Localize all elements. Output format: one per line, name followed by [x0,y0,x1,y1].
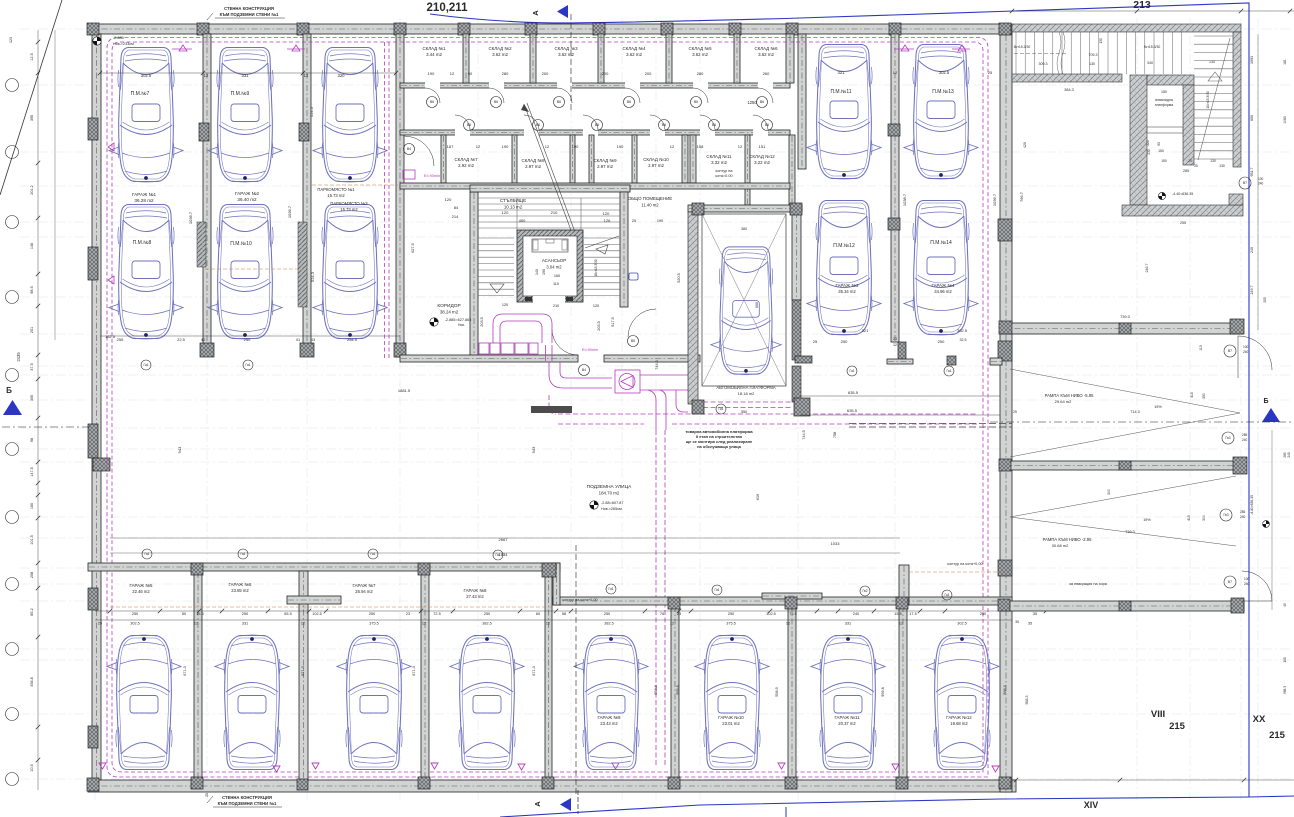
svg-text:321: 321 [862,328,869,333]
svg-text:201.2: 201.2 [30,185,34,195]
svg-text:214: 214 [452,214,459,219]
svg-text:Б: Б [1263,398,1268,405]
svg-text:36.28 m2: 36.28 m2 [134,198,154,203]
svg-text:250: 250 [728,612,734,616]
svg-text:151: 151 [759,144,766,149]
svg-text:190: 190 [572,144,579,149]
svg-text:671.3: 671.3 [183,666,187,676]
svg-text:СКЛАД №7: СКЛАД №7 [454,157,478,162]
svg-text:12: 12 [422,622,426,626]
svg-text:201: 201 [30,327,34,333]
svg-text:75.5: 75.5 [789,612,796,616]
svg-text:254.5: 254.5 [347,337,358,342]
svg-text:12: 12 [893,343,897,347]
svg-text:255: 255 [117,337,124,342]
svg-text:СКЛАД №12: СКЛАД №12 [749,154,775,159]
svg-text:260: 260 [763,71,770,76]
svg-text:150: 150 [1161,159,1167,163]
svg-text:П.М.№9: П.М.№9 [231,91,250,97]
svg-text:12: 12 [738,144,743,149]
svg-text:25: 25 [98,622,102,626]
svg-text:115: 115 [1199,345,1203,351]
svg-text:60: 60 [536,612,540,616]
svg-text:671.3: 671.3 [301,666,305,676]
svg-text:331: 331 [242,73,250,78]
svg-text:-2.885: -2.885 [113,36,124,40]
svg-text:415: 415 [1187,515,1191,521]
svg-text:76: 76 [660,612,664,616]
svg-text:43: 43 [311,337,316,342]
svg-text:203.5: 203.5 [597,321,601,331]
svg-text:190: 190 [657,219,663,223]
svg-text:450: 450 [519,218,526,223]
svg-text:23: 23 [406,612,410,616]
svg-text:250: 250 [369,612,375,616]
svg-text:В6: В6 [662,123,666,127]
svg-text:РАМПА КЪМ НИВО -5.85: РАМПА КЪМ НИВО -5.85 [1045,393,1094,398]
svg-text:250: 250 [604,612,610,616]
svg-text:В6: В6 [694,100,698,104]
svg-text:П.М.№11: П.М.№11 [830,89,851,95]
svg-text:Га1: Га1 [714,588,719,592]
svg-text:П.М.№7: П.М.№7 [131,91,150,97]
svg-text:25: 25 [1013,410,1017,414]
svg-text:ГАРАЖ №8: ГАРАЖ №8 [463,588,487,593]
svg-text:285: 285 [1242,433,1248,437]
svg-text:А: А [533,801,542,807]
svg-text:158: 158 [697,144,704,149]
svg-text:240: 240 [1242,438,1248,442]
svg-text:Га1: Га1 [245,363,250,367]
svg-text:12.5: 12.5 [30,53,34,60]
svg-text:240: 240 [1258,182,1264,186]
svg-text:190: 190 [502,144,509,149]
svg-text:Га1: Га1 [944,593,949,597]
svg-text:331: 331 [845,622,851,626]
svg-text:200: 200 [542,71,549,76]
svg-text:38.24 m2: 38.24 m2 [440,310,459,315]
svg-text:1036.7: 1036.7 [287,205,292,218]
svg-text:160: 160 [554,274,560,278]
svg-text:302.5: 302.5 [957,622,967,626]
svg-text:35: 35 [1015,620,1019,624]
svg-text:215: 215 [1169,721,1186,732]
svg-text:943: 943 [177,446,182,453]
svg-text:210,211: 210,211 [427,2,469,14]
svg-text:213: 213 [1133,0,1151,11]
svg-text:В6: В6 [595,123,599,127]
svg-text:524.3: 524.3 [310,271,315,282]
svg-text:98.5: 98.5 [30,286,34,293]
svg-text:37.5: 37.5 [30,363,34,370]
svg-text:П.М.№12: П.М.№12 [833,243,855,249]
svg-text:ЕI=90min: ЕI=90min [424,174,440,178]
svg-text:36.40 m2: 36.40 m2 [237,197,257,202]
svg-text:215: 215 [1269,730,1286,741]
svg-text:СКЛАД №2: СКЛАД №2 [488,46,512,51]
svg-text:240: 240 [1244,582,1250,586]
svg-text:65.5: 65.5 [284,612,291,616]
svg-text:415: 415 [1190,392,1194,398]
svg-text:-4.40=636.35: -4.40=636.35 [1172,192,1193,196]
svg-text:ПАРКОМЯСТО №3: ПАРКОМЯСТО №3 [330,201,368,206]
svg-text:395: 395 [30,115,34,121]
svg-text:В6: В6 [467,123,471,127]
svg-text:19%: 19% [1143,518,1151,522]
svg-text:84: 84 [454,205,459,210]
svg-text:951.7: 951.7 [1250,168,1254,177]
svg-text:Га1: Га1 [144,552,149,556]
svg-text:382.5: 382.5 [482,622,492,626]
svg-text:Га1: Га1 [718,407,723,411]
svg-text:240: 240 [853,612,859,616]
svg-text:25: 25 [205,793,209,797]
svg-text:12: 12 [670,622,674,626]
svg-text:СТЕННА КОНСТРУКЦИЯ: СТЕННА КОНСТРУКЦИЯ [224,6,274,11]
svg-text:3.04 m2: 3.04 m2 [546,265,562,270]
svg-text:1038.7: 1038.7 [902,193,907,206]
svg-text:В6: В6 [536,123,540,127]
svg-text:240: 240 [1243,350,1249,354]
svg-text:22.46 m2: 22.46 m2 [132,589,150,594]
svg-text:250: 250 [484,612,490,616]
svg-text:-2.88=607.87: -2.88=607.87 [601,501,624,505]
svg-text:3.62 m2: 3.62 m2 [492,52,508,57]
svg-text:2.97 m2: 2.97 m2 [648,163,664,168]
svg-text:инвалидна: инвалидна [1155,98,1173,102]
svg-text:18.18 m2: 18.18 m2 [738,391,755,396]
svg-text:25: 25 [632,219,636,223]
svg-text:160: 160 [30,503,34,509]
svg-text:190: 190 [542,269,546,275]
svg-text:2.97 m2: 2.97 m2 [525,164,541,169]
svg-text:524.3: 524.3 [309,106,314,117]
svg-text:187: 187 [447,144,454,149]
svg-text:АВТОМОБИЛНА ПЛАТФОРМА: АВТОМОБИЛНА ПЛАТФОРМА [716,385,775,390]
svg-text:П.М.№10: П.М.№10 [230,241,252,247]
svg-text:2.92 m2: 2.92 m2 [458,163,474,168]
svg-text:СКЛАД №9: СКЛАД №9 [593,158,617,163]
svg-text:102.5: 102.5 [312,612,322,616]
svg-text:СТЕННА КОНСТРУКЦИЯ: СТЕННА КОНСТРУКЦИЯ [222,795,272,800]
svg-text:250: 250 [244,337,251,342]
svg-text:41: 41 [296,337,301,342]
svg-text:СКЛАД №11: СКЛАД №11 [706,154,732,159]
svg-text:568.3: 568.3 [1003,685,1007,695]
svg-text:100: 100 [1258,177,1264,181]
svg-text:250: 250 [841,339,848,344]
svg-text:249.7: 249.7 [1250,286,1254,295]
svg-text:3.62 m2: 3.62 m2 [626,52,642,57]
svg-text:150: 150 [1158,149,1164,153]
svg-text:635.5: 635.5 [847,408,858,413]
svg-text:Га1: Га1 [143,363,148,367]
svg-text:25: 25 [988,70,993,75]
svg-text:3.44 m2: 3.44 m2 [426,52,442,57]
svg-text:285: 285 [1183,169,1189,173]
svg-text:25: 25 [1188,159,1192,163]
svg-text:1250: 1250 [747,100,757,105]
svg-text:35: 35 [1033,612,1037,616]
svg-text:П.М.№8: П.М.№8 [133,240,152,246]
svg-text:КОРИДОР: КОРИДОР [437,303,460,309]
svg-text:101.5: 101.5 [30,535,34,545]
svg-text:302.5: 302.5 [957,328,968,333]
svg-text:12: 12 [786,622,790,626]
svg-text:600: 600 [1250,115,1254,121]
svg-text:517.5: 517.5 [611,317,615,327]
svg-text:В5: В5 [631,339,635,343]
svg-text:58: 58 [562,612,566,616]
svg-text:300: 300 [1107,489,1111,495]
svg-text:12: 12 [301,622,305,626]
svg-text:П.М.№13: П.М.№13 [932,89,954,95]
svg-text:12: 12 [450,71,455,76]
svg-text:контур на кота+0.00: контур на кота+0.00 [562,598,597,602]
svg-text:8ст15.3/30: 8ст15.3/30 [1014,45,1031,49]
svg-text:302.5: 302.5 [141,73,152,78]
svg-text:П.М.№14: П.М.№14 [930,240,952,246]
svg-text:контур на: контур на [716,169,734,173]
svg-text:240: 240 [1287,452,1291,458]
svg-text:210: 210 [553,304,559,308]
svg-text:250: 250 [242,612,248,616]
svg-text:ОБЩО ПОМЕЩЕНИЕ: ОБЩО ПОМЕЩЕНИЕ [628,196,673,201]
svg-text:В6: В6 [712,123,716,127]
svg-text:320: 320 [338,73,346,78]
svg-text:Б: Б [6,386,12,395]
svg-text:34.96 m2: 34.96 m2 [934,289,952,294]
svg-text:255: 255 [1180,221,1186,225]
svg-text:23.43 m2: 23.43 m2 [600,721,618,726]
svg-text:240: 240 [1240,515,1246,519]
svg-text:130: 130 [1210,159,1216,163]
svg-text:Га1: Га1 [495,553,500,557]
svg-text:93: 93 [1157,142,1161,146]
svg-text:375.5: 375.5 [369,622,379,626]
svg-text:100: 100 [1244,577,1250,581]
svg-text:126: 126 [604,218,611,223]
svg-text:10.13 m2: 10.13 m2 [504,205,523,210]
svg-text:100: 100 [1283,657,1287,663]
svg-text:РАМПА КЪМ НИВО -2.95: РАМПА КЪМ НИВО -2.95 [1043,537,1092,542]
svg-text:100: 100 [1243,345,1249,349]
svg-text:380: 380 [741,227,747,231]
svg-text:В6: В6 [627,100,631,104]
svg-text:321: 321 [838,70,846,75]
svg-text:382.5: 382.5 [604,622,614,626]
svg-text:ГАРАЖ №6: ГАРАЖ №6 [228,582,252,587]
svg-text:Га1: Га1 [370,552,375,556]
svg-text:19.68 m2: 19.68 m2 [950,721,968,726]
svg-text:Гв3: Гв3 [1225,436,1230,440]
svg-text:208: 208 [30,572,34,578]
svg-text:19%: 19% [1154,405,1162,409]
svg-text:Гв3: Гв3 [1223,513,1228,517]
svg-text:ЕI=90min: ЕI=90min [582,348,598,352]
svg-text:146: 146 [30,243,34,249]
svg-text:280: 280 [502,71,509,76]
svg-text:25: 25 [1194,164,1198,168]
svg-text:72.5: 72.5 [433,612,440,616]
svg-text:744.5: 744.5 [802,430,806,440]
svg-text:2.97 m2: 2.97 m2 [597,164,613,169]
svg-text:А: А [531,10,540,16]
svg-text:616: 616 [755,493,760,500]
svg-text:110: 110 [553,282,559,286]
svg-text:102.5: 102.5 [766,612,776,616]
svg-text:959.8: 959.8 [676,685,680,695]
svg-text:-4.40=636.35: -4.40=636.35 [1250,495,1254,515]
svg-text:25: 25 [813,339,818,344]
svg-text:1036.7: 1036.7 [188,211,193,224]
svg-text:ГАРАЖ №9: ГАРАЖ №9 [597,715,621,720]
svg-text:СКЛАД №8: СКЛАД №8 [521,158,545,163]
svg-text:250: 250 [132,612,138,616]
svg-text:30.68 m2: 30.68 m2 [1052,543,1069,548]
svg-text:В6: В6 [765,123,769,127]
svg-text:600: 600 [755,302,759,308]
svg-text:190: 190 [617,144,624,149]
svg-text:744.5: 744.5 [655,360,659,370]
svg-text:СТЪЛБИЩЕ: СТЪЛБИЩЕ [500,198,526,203]
svg-text:15.73 m2: 15.73 m2 [340,207,358,212]
svg-text:250: 250 [980,612,986,616]
svg-text:СКЛАД №10: СКЛАД №10 [643,157,669,162]
svg-text:СКЛАД №4: СКЛАД №4 [622,46,646,51]
svg-text:XIV: XIV [1084,800,1099,810]
svg-text:29.64 m2: 29.64 m2 [1055,399,1072,404]
svg-text:205: 205 [1263,297,1267,303]
svg-text:190: 190 [428,71,435,76]
svg-text:220: 220 [1146,140,1150,146]
svg-text:181: 181 [1283,59,1287,65]
svg-text:120: 120 [603,211,610,216]
svg-text:1036.7: 1036.7 [992,193,997,206]
svg-text:9ст15.3/30: 9ст15.3/30 [1144,45,1161,49]
svg-text:ГАРАЖ №3: ГАРАЖ №3 [835,283,859,288]
svg-text:456.8: 456.8 [30,677,34,687]
svg-text:123: 123 [9,37,13,43]
svg-text:23.01 m2: 23.01 m2 [722,721,740,726]
svg-text:130: 130 [1219,164,1225,168]
svg-text:285: 285 [1240,510,1246,514]
svg-text:22.5: 22.5 [177,337,186,342]
svg-text:709.3: 709.3 [1089,53,1098,57]
svg-text:В7: В7 [1228,349,1232,353]
svg-text:Нсв.: Нсв. [458,323,465,327]
svg-text:420: 420 [1023,142,1027,148]
svg-text:200: 200 [645,71,652,76]
svg-text:СКЛАД №3: СКЛАД №3 [554,46,578,51]
svg-text:35.34 m2: 35.34 m2 [838,289,856,294]
svg-text:Га1: Га1 [946,369,951,373]
svg-text:302.5: 302.5 [130,622,140,626]
svg-text:17.5: 17.5 [909,612,916,616]
svg-text:ГАРАЖ №10: ГАРАЖ №10 [718,715,744,720]
svg-text:758: 758 [833,432,837,438]
svg-text:147.5: 147.5 [30,467,34,477]
svg-text:ГАРАЖ №4: ГАРАЖ №4 [931,283,955,288]
svg-text:23.85 m2: 23.85 m2 [231,588,249,593]
svg-text:390: 390 [1202,393,1206,399]
svg-text:В6: В6 [430,100,434,104]
svg-text:3.62 m2: 3.62 m2 [558,52,574,57]
svg-text:958.8: 958.8 [654,685,658,695]
svg-text:246.7: 246.7 [1145,264,1149,273]
svg-text:85.2: 85.2 [30,608,34,615]
svg-text:250: 250 [938,339,945,344]
svg-text:739.3: 739.3 [1120,315,1130,319]
svg-text:ГАРАЖ №2: ГАРАЖ №2 [235,191,260,196]
svg-text:Га1: Га1 [240,552,245,556]
svg-text:11.40 m2: 11.40 m2 [641,203,659,208]
svg-text:23: 23 [893,337,897,341]
svg-text:XX: XX [1253,714,1266,725]
svg-text:120: 120 [502,303,508,307]
svg-text:ПАРКОМЯСТО №1: ПАРКОМЯСТО №1 [317,187,355,192]
svg-text:331: 331 [242,622,248,626]
svg-text:305: 305 [30,395,34,401]
svg-text:2667: 2667 [499,537,509,542]
svg-text:384.3: 384.3 [1064,88,1074,92]
svg-text:Нсв.=265см: Нсв.=265см [601,507,622,511]
svg-text:18ст15.3/30: 18ст15.3/30 [594,259,598,276]
svg-text:32.5: 32.5 [960,338,967,342]
svg-text:3.32 m2: 3.32 m2 [711,160,727,165]
svg-text:В7: В7 [1243,181,1247,185]
svg-text:739.3: 739.3 [1125,530,1135,534]
svg-text:ГАРАЖ №7: ГАРАЖ №7 [352,583,376,588]
svg-text:558.9: 558.9 [775,687,779,697]
svg-text:12: 12 [899,622,903,626]
svg-text:568.3: 568.3 [1025,696,1029,705]
svg-text:12: 12 [194,622,198,626]
svg-text:15.5: 15.5 [894,612,901,616]
svg-text:1033: 1033 [831,541,841,546]
svg-text:230: 230 [1147,149,1151,155]
svg-text:1083: 1083 [1283,116,1287,124]
svg-text:50: 50 [182,612,186,616]
svg-text:1093: 1093 [1250,56,1254,64]
svg-text:714.3: 714.3 [1130,410,1140,414]
svg-text:2435: 2435 [16,352,21,362]
svg-text:СКЛАД №1: СКЛАД №1 [422,46,446,51]
svg-text:3.62 m2: 3.62 m2 [758,52,774,57]
svg-text:АСАНСЬОР: АСАНСЬОР [542,258,566,263]
svg-text:375.5: 375.5 [726,622,736,626]
svg-text:кота=0.00: кота=0.00 [715,174,732,178]
svg-text:10ст15.3/30: 10ст15.3/30 [1206,91,1210,108]
svg-text:12: 12 [546,622,550,626]
svg-text:27.43 m2: 27.43 m2 [466,594,484,599]
svg-text:3.22 m2: 3.22 m2 [754,160,770,165]
svg-text:943: 943 [531,446,536,453]
svg-text:184.70 m2: 184.70 m2 [599,491,620,496]
svg-text:Га1: Га1 [608,587,613,591]
svg-text:90: 90 [468,71,473,76]
svg-text:12: 12 [670,144,675,149]
svg-text:В6: В6 [557,100,561,104]
svg-text:В6: В6 [760,100,764,104]
svg-text:СКЛАД №5: СКЛАД №5 [688,46,712,51]
svg-text:20.37 m2: 20.37 m2 [838,721,856,726]
svg-text:1881.5: 1881.5 [398,388,411,393]
svg-text:120: 120 [445,197,452,202]
svg-text:В6: В6 [494,100,498,104]
svg-text:ГАРАЖ №11: ГАРАЖ №11 [834,715,860,720]
svg-text:ПОДЗЕМНА УЛИЦА: ПОДЗЕМНА УЛИЦА [587,484,632,490]
